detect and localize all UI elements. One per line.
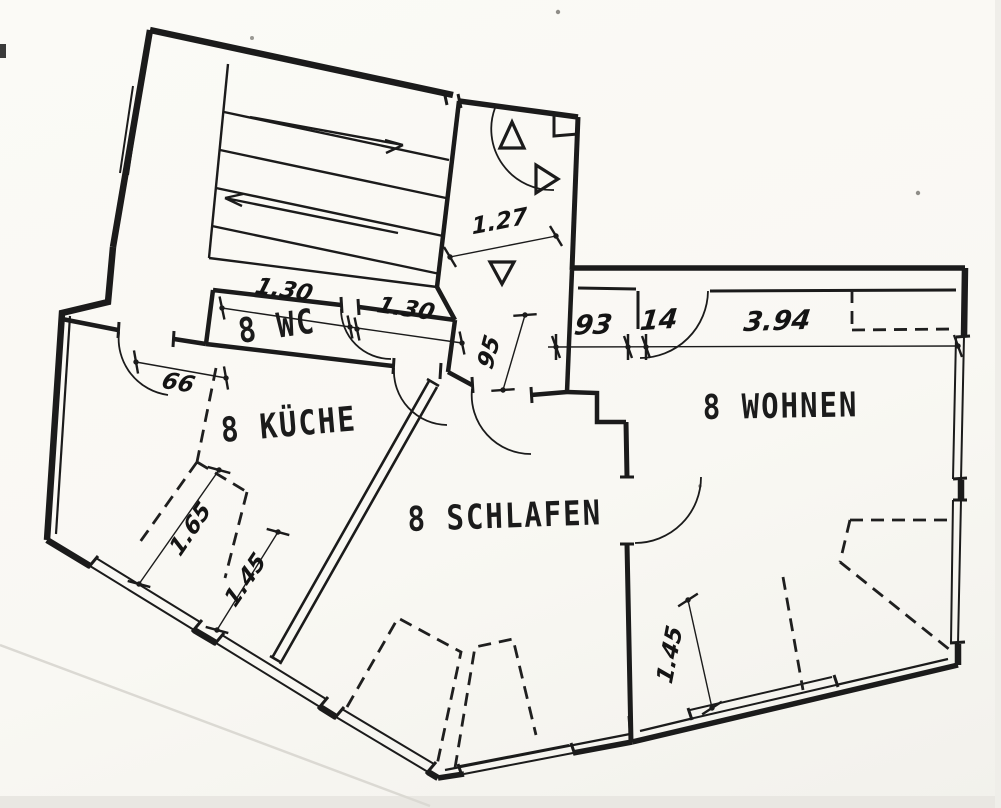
wohnen-top-dashes (852, 290, 953, 330)
schlafen-door-arc (472, 389, 531, 454)
triangle-up-icon (500, 122, 524, 148)
dim-kueche-165: 1.65 (165, 497, 216, 562)
wohnen-bottom-dashes (783, 520, 955, 690)
dim-entry-hall: 1.27 (471, 203, 529, 240)
dim-wohnen-14: 14 (639, 304, 680, 338)
dim-wc-left: 1.30 (252, 274, 315, 307)
dim-wohnen-93: 93 (572, 309, 614, 341)
wohnen-schlafen-door-arc (635, 477, 701, 543)
triangle-down-icon (490, 262, 514, 284)
dim-kueche-door: 66 (158, 368, 197, 398)
stair-down-arrow (225, 194, 398, 233)
dim-wohnen-145: 1.45 (653, 623, 689, 687)
scanned-floor-plan-page: 8 WC 8 KÜCHE 8 SCHLAFEN 8 WOHNEN 1.30 1.… (0, 0, 1001, 808)
bay-slope-dashes-right (455, 639, 536, 768)
room-labels: 8 WC 8 KÜCHE 8 SCHLAFEN 8 WOHNEN (219, 302, 859, 539)
floor-plan-svg: 8 WC 8 KÜCHE 8 SCHLAFEN 8 WOHNEN 1.30 1.… (0, 0, 1001, 808)
room-label-kueche: 8 KÜCHE (219, 398, 358, 451)
room-label-wc: 8 WC (236, 302, 318, 351)
room-label-schlafen: 8 SCHLAFEN (407, 494, 603, 540)
hall-triangles (490, 122, 558, 284)
dimension-lines (136, 236, 958, 708)
dim-kueche-145: 1.45 (220, 548, 271, 613)
room-label-wohnen: 8 WOHNEN (702, 386, 858, 428)
staircase (209, 64, 449, 287)
bay-slope-dashes-left (347, 618, 461, 765)
dim-wohnen-394: 3.94 (742, 305, 813, 338)
dim-wc-right: 1.30 (374, 293, 437, 326)
dim-corridor: 95 (473, 332, 505, 373)
